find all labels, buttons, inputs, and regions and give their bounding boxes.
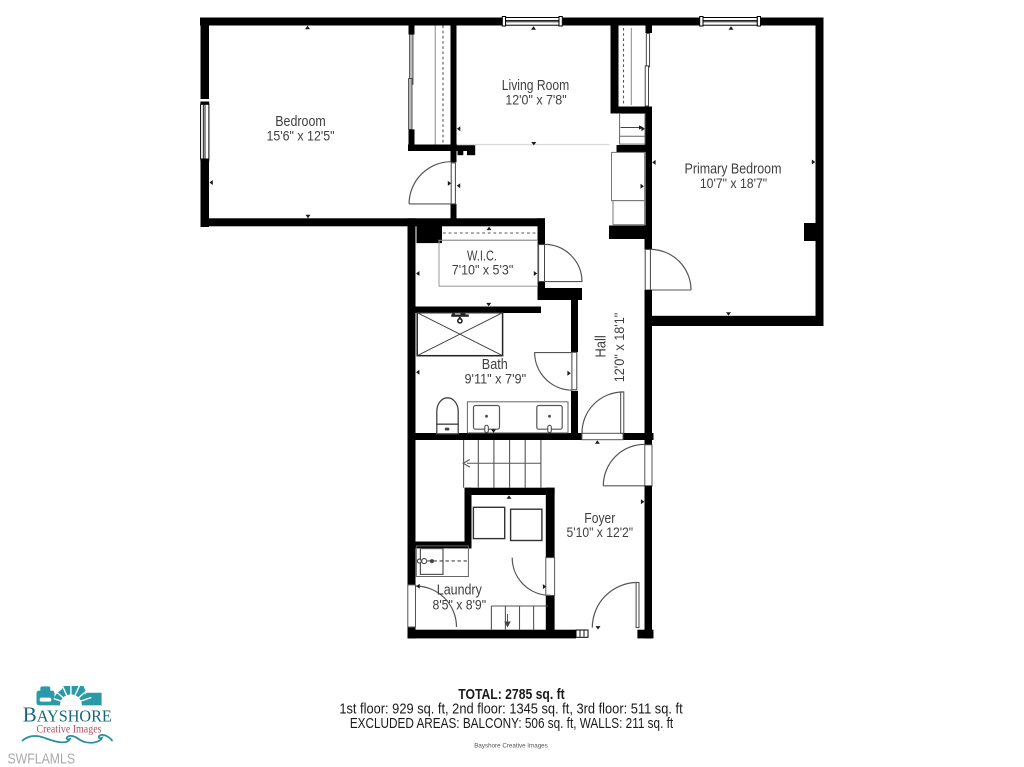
svg-text:TOTAL: 2785 sq. ft: TOTAL: 2785 sq. ft — [458, 687, 565, 703]
svg-text:10'7" x 18'7": 10'7" x 18'7" — [700, 176, 767, 192]
svg-text:EXCLUDED AREAS: BALCONY: 506 s: EXCLUDED AREAS: BALCONY: 506 sq. ft, WAL… — [350, 716, 673, 732]
svg-text:B: B — [23, 703, 37, 727]
svg-text:9'11" x 7'9": 9'11" x 7'9" — [465, 372, 527, 388]
svg-text:1st floor: 929 sq. ft, 2nd flo: 1st floor: 929 sq. ft, 2nd floor: 1345 s… — [339, 702, 682, 718]
svg-text:12'0" x 18'1": 12'0" x 18'1" — [612, 313, 628, 383]
svg-text:5'10" x 12'2": 5'10" x 12'2" — [567, 525, 634, 541]
svg-text:15'6" x 12'5": 15'6" x 12'5" — [267, 129, 335, 145]
svg-text:12'0" x 7'8": 12'0" x 7'8" — [505, 93, 566, 109]
svg-text:Creative Images: Creative Images — [37, 724, 102, 736]
svg-text:7'10" x 5'3": 7'10" x 5'3" — [452, 263, 514, 279]
svg-text:Hall: Hall — [594, 335, 610, 358]
svg-text:Laundry: Laundry — [437, 583, 482, 599]
svg-text:SWFLAMLS: SWFLAMLS — [8, 752, 76, 767]
svg-text:8'5" x 8'9": 8'5" x 8'9" — [433, 598, 487, 614]
svg-text:Bayshore Creative Images: Bayshore Creative Images — [474, 742, 548, 749]
svg-text:Bath: Bath — [482, 357, 508, 373]
